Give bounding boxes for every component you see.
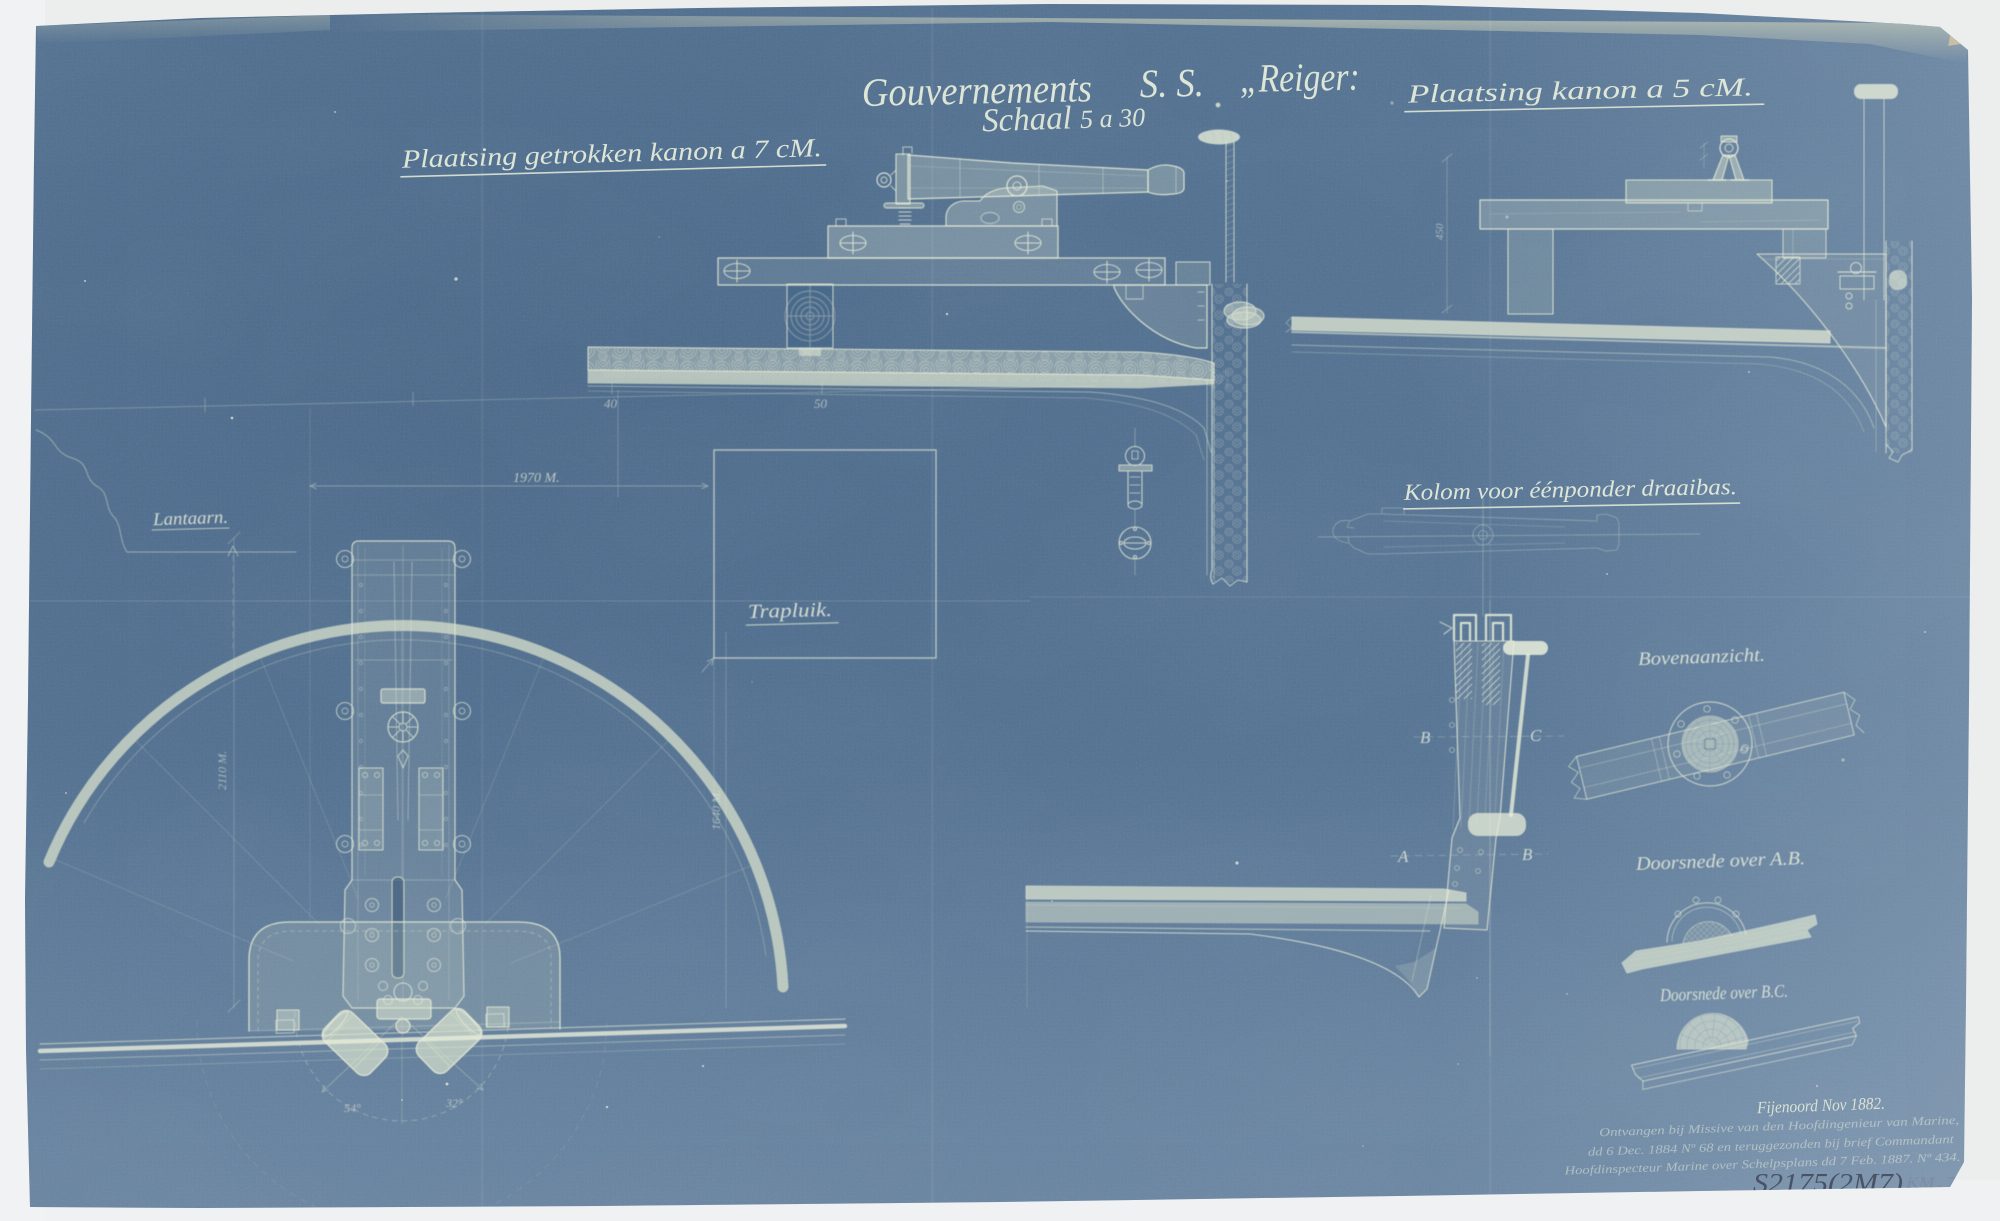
svg-text:Lantaarn.: Lantaarn. (152, 507, 229, 530)
svg-text:50: 50 (814, 396, 828, 411)
svg-text:Trapluik.: Trapluik. (748, 599, 833, 623)
svg-text:B: B (1522, 845, 1533, 864)
svg-text:Bovenaanzicht.: Bovenaanzicht. (1638, 645, 1766, 670)
svg-text:„Reiger:: „Reiger: (1239, 54, 1360, 102)
svg-text:1640 M.: 1640 M. (709, 790, 723, 830)
svg-text:450: 450 (1434, 223, 1446, 240)
svg-text:54°: 54° (344, 1101, 361, 1115)
svg-text:32°: 32° (445, 1096, 463, 1110)
svg-text:C: C (1530, 726, 1542, 745)
svg-text:B: B (1420, 728, 1431, 747)
svg-text:S. S.: S. S. (1139, 60, 1204, 106)
svg-text:A: A (1397, 847, 1409, 866)
svg-text:2110 M.: 2110 M. (215, 751, 229, 790)
svg-text:40: 40 (604, 396, 618, 411)
svg-text:1970 M.: 1970 M. (513, 471, 560, 486)
